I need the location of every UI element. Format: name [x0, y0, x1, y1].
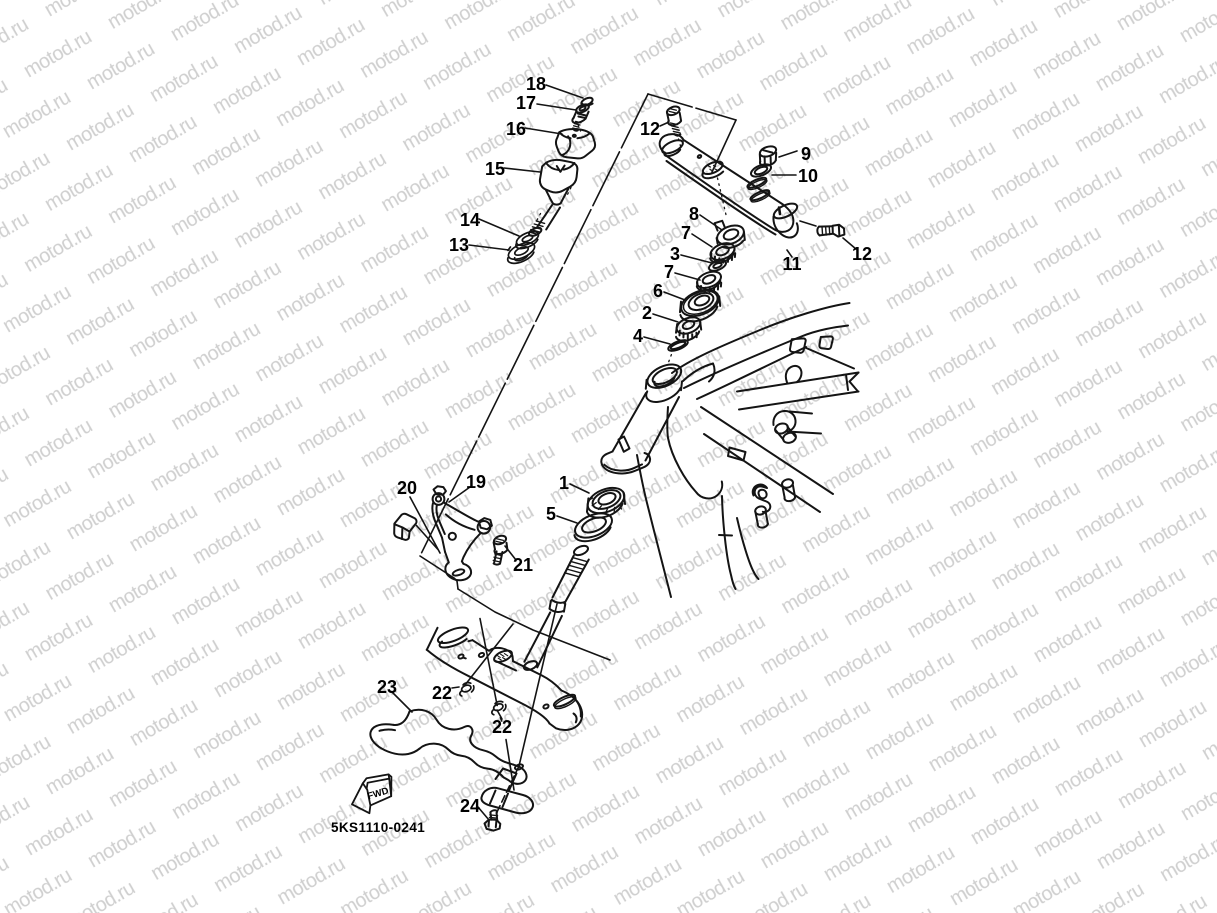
svg-text:24: 24 [460, 796, 480, 816]
svg-text:21: 21 [513, 555, 533, 575]
svg-text:7: 7 [664, 262, 674, 282]
svg-text:23: 23 [377, 677, 397, 697]
svg-text:19: 19 [466, 472, 486, 492]
svg-text:7: 7 [681, 223, 691, 243]
svg-text:1: 1 [559, 473, 569, 493]
svg-text:12: 12 [640, 119, 660, 139]
svg-text:11: 11 [782, 254, 801, 274]
svg-text:4: 4 [633, 326, 643, 346]
svg-text:18: 18 [526, 74, 546, 94]
svg-text:5: 5 [546, 504, 556, 524]
svg-text:14: 14 [460, 210, 480, 230]
svg-text:22: 22 [432, 683, 452, 703]
svg-text:6: 6 [653, 281, 663, 301]
svg-text:15: 15 [485, 159, 505, 179]
svg-text:3: 3 [670, 244, 680, 264]
svg-text:13: 13 [449, 235, 469, 255]
svg-text:20: 20 [397, 478, 417, 498]
svg-text:12: 12 [852, 244, 872, 264]
svg-text:8: 8 [689, 204, 699, 224]
svg-text:9: 9 [801, 144, 811, 164]
svg-text:17: 17 [516, 93, 536, 113]
svg-text:10: 10 [798, 166, 818, 186]
svg-text:2: 2 [642, 303, 652, 323]
svg-text:16: 16 [506, 119, 526, 139]
svg-text:5KS1110-0241: 5KS1110-0241 [331, 820, 425, 835]
svg-text:22: 22 [492, 717, 512, 737]
